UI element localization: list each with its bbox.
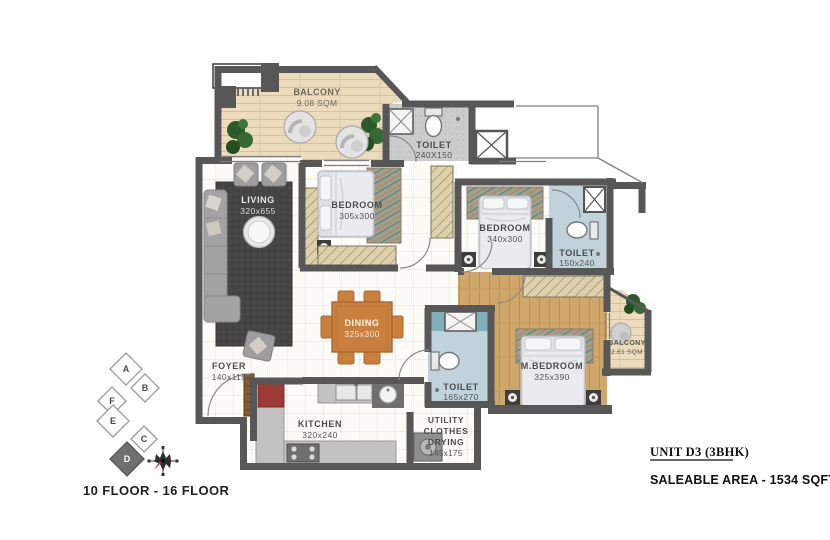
key-letter-f: F bbox=[109, 396, 115, 406]
armchair-icon bbox=[262, 163, 286, 186]
balcony2-dims: 2.61 SQM bbox=[611, 349, 643, 356]
toilet1-label: TOILET bbox=[416, 140, 451, 150]
kitchen-dims: 320x240 bbox=[302, 430, 337, 440]
mbedroom-dims: 325x390 bbox=[534, 372, 569, 382]
wash-basin-icon bbox=[372, 381, 404, 408]
unit-title: UNIT D3 (3BHK) bbox=[650, 445, 749, 459]
armchair-icon bbox=[243, 330, 276, 361]
key-letter-e: E bbox=[110, 416, 116, 426]
floor-drain-icon bbox=[596, 252, 600, 256]
balcony1-dims: 9.08 SQM bbox=[297, 98, 338, 108]
title-block: UNIT D3 (3BHK) SALEABLE AREA - 1534 SQFT bbox=[650, 445, 830, 487]
bedroom1-closet bbox=[305, 188, 318, 266]
key-letter-d: D bbox=[124, 454, 131, 464]
bedroom1-label: BEDROOM bbox=[331, 200, 382, 210]
utility-label: UTILITY bbox=[428, 415, 464, 425]
stove-icon bbox=[287, 444, 319, 462]
speaker-icon bbox=[586, 390, 601, 405]
living-dims: 320x655 bbox=[240, 206, 275, 216]
toilet3-label: TOILET bbox=[443, 382, 478, 392]
shower-icon bbox=[445, 312, 476, 331]
floor-plan-drawing: BALCONY 9.08 SQM TOILET 240X150 LIVING 3… bbox=[0, 0, 830, 540]
key-letter-c: C bbox=[141, 434, 148, 444]
bedroom2-dims: 340x300 bbox=[487, 234, 522, 244]
kitchen-label: KITCHEN bbox=[298, 419, 342, 429]
compass-icon bbox=[148, 446, 179, 476]
bedroom1-wardrobe bbox=[318, 246, 396, 266]
toilet-wc-icon bbox=[567, 222, 598, 239]
bedroom2-label: BEDROOM bbox=[479, 223, 530, 233]
bed-icon bbox=[521, 336, 585, 406]
toilet-wc-icon bbox=[425, 108, 442, 137]
balcony2-label: BALCONY bbox=[608, 340, 645, 347]
dining-dims: 325x300 bbox=[344, 329, 379, 339]
mbedroom-wardrobe bbox=[523, 276, 605, 297]
toilet2-dims: 150x240 bbox=[559, 258, 594, 268]
key-letter-b: B bbox=[142, 383, 149, 393]
floor-drain-icon bbox=[435, 388, 439, 392]
balcony1-label: BALCONY bbox=[293, 87, 340, 97]
foyer-label: FOYER bbox=[212, 361, 246, 371]
speaker-icon bbox=[461, 252, 476, 267]
toilet1-dims: 240X150 bbox=[416, 150, 453, 160]
lounge-chair-icon bbox=[284, 111, 316, 143]
toilet2-label: TOILET bbox=[559, 248, 594, 258]
coffee-table-icon bbox=[244, 217, 275, 248]
living-label: LIVING bbox=[241, 195, 275, 205]
toilet3-dims: 165x270 bbox=[443, 392, 478, 402]
floor-plan-page: BALCONY 9.08 SQM TOILET 240X150 LIVING 3… bbox=[0, 0, 830, 540]
key-letter-a: A bbox=[123, 364, 130, 374]
utility-dims: 145x175 bbox=[429, 449, 463, 458]
fridge-icon bbox=[258, 383, 284, 407]
armchair-icon bbox=[234, 163, 258, 186]
speaker-icon bbox=[505, 390, 520, 405]
saleable-area-text: SALEABLE AREA - 1534 SQFT bbox=[650, 473, 830, 487]
shower-icon bbox=[389, 109, 413, 134]
dining-label: DINING bbox=[344, 318, 379, 328]
floor-range-text: 10 FLOOR - 16 FLOOR bbox=[83, 483, 229, 498]
floor-drain-icon bbox=[456, 117, 460, 121]
foyer-dims: 140x115 bbox=[212, 372, 247, 382]
lounge-chair-icon bbox=[336, 126, 368, 158]
utility-line3: DRYING bbox=[428, 437, 464, 447]
mbedroom-label: M.BEDROOM bbox=[521, 361, 583, 371]
corridor-wardrobe bbox=[431, 166, 453, 238]
toilet-wc-icon bbox=[431, 352, 459, 370]
bedroom1-dims: 305x300 bbox=[339, 211, 374, 221]
shaft-icon bbox=[584, 187, 605, 212]
utility-line2: CLOTHES bbox=[424, 426, 469, 436]
